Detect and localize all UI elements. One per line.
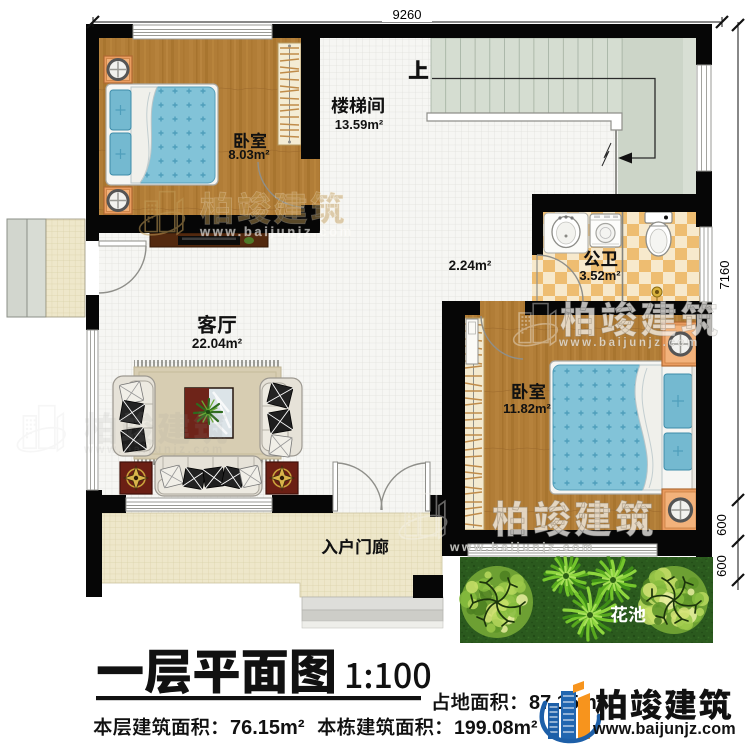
svg-text:www.baijunjz.com: www.baijunjz.com	[449, 540, 595, 554]
svg-text:www.baijunjz.com: www.baijunjz.com	[592, 720, 736, 738]
svg-text:9260: 9260	[393, 7, 422, 22]
svg-text:22.04m²: 22.04m²	[192, 336, 243, 351]
svg-text:199.08m²: 199.08m²	[454, 717, 538, 739]
svg-text:76.15m²: 76.15m²	[230, 717, 305, 739]
svg-text:7160: 7160	[717, 261, 732, 290]
svg-text:www.baijunjz.com: www.baijunjz.com	[83, 444, 225, 456]
svg-text:600: 600	[714, 514, 729, 536]
svg-text:600: 600	[714, 555, 729, 577]
svg-text:8.03m²: 8.03m²	[228, 147, 270, 162]
svg-text:13.59m²: 13.59m²	[335, 117, 384, 132]
svg-text:11.82m²: 11.82m²	[503, 401, 551, 416]
svg-text:3.52m²: 3.52m²	[579, 268, 621, 283]
svg-text:www.baijunjz.com: www.baijunjz.com	[558, 337, 700, 349]
svg-text:2.24m²: 2.24m²	[449, 258, 492, 273]
svg-text:www.baijunjz.com: www.baijunjz.com	[199, 224, 354, 239]
